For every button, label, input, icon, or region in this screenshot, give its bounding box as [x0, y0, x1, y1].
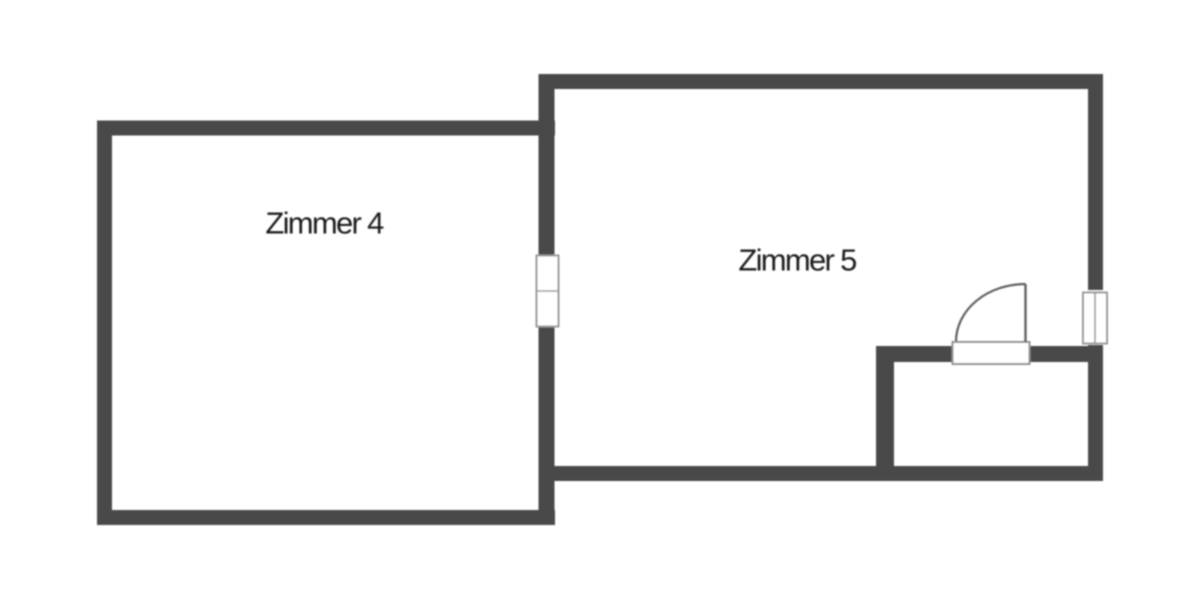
svg-text:Zimmer 4: Zimmer 4 — [265, 206, 384, 241]
svg-text:Zimmer 5: Zimmer 5 — [738, 243, 856, 278]
